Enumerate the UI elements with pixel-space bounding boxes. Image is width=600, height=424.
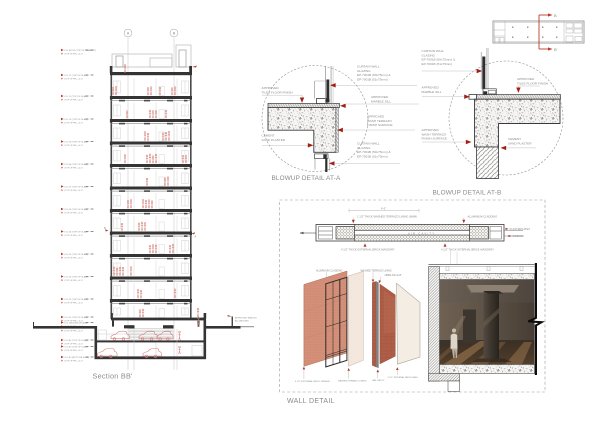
svg-text:SAND PLASTER: SAND PLASTER — [508, 141, 532, 145]
svg-text:25MM AIR GAP: 25MM AIR GAP — [385, 274, 402, 277]
svg-text:(TOP OF FFL) +0'-0": (TOP OF FFL) +0'-0" — [65, 167, 84, 169]
svg-text:FINISH SURFACE: FINISH SURFACE — [367, 123, 393, 127]
svg-text:LVL ROOF (TOP OF PARAPET): LVL ROOF (TOP OF PARAPET) — [65, 49, 97, 52]
svg-text:MARBLE SILL: MARBLE SILL — [422, 90, 442, 94]
svg-text:(TOP OF FFL) +0'-0": (TOP OF FFL) +0'-0" — [65, 122, 84, 124]
svg-text:(TOP OF FFL) +0'-0": (TOP OF FFL) +0'-0" — [65, 330, 84, 332]
svg-text:BLOWUP DETAIL AT-A: BLOWUP DETAIL AT-A — [272, 175, 341, 182]
svg-text:ALL AROUND: ALL AROUND — [235, 320, 249, 323]
svg-text:LVL 06 (TOP OF SLAB): LVL 06 (TOP OF SLAB) — [65, 208, 88, 211]
svg-text:LVL 04 (TOP OF SLAB): LVL 04 (TOP OF SLAB) — [65, 253, 88, 256]
svg-text:WALL DETAIL: WALL DETAIL — [287, 398, 335, 405]
svg-text:(TOP OF FFL) +0'-0": (TOP OF FFL) +0'-0" — [65, 360, 84, 362]
svg-text:AIR CAVITY: AIR CAVITY — [408, 231, 435, 235]
svg-text:LVL GROUND (PLAZA): LVL GROUND (PLAZA) — [65, 322, 88, 325]
svg-text:LVL 10 (TOP OF SLAB): LVL 10 (TOP OF SLAB) — [65, 118, 88, 121]
svg-text:(TOP OF FFL) +0'-0": (TOP OF FFL) +0'-0" — [65, 302, 84, 304]
svg-text:A: A — [127, 31, 130, 36]
svg-text:LVL 02 (TOP OF SLAB): LVL 02 (TOP OF SLAB) — [65, 298, 88, 301]
svg-text:WASHED TERRAZO LINING: WASHED TERRAZO LINING — [338, 380, 367, 383]
svg-text:WINDOW: WINDOW — [513, 234, 525, 238]
svg-text:(TOP OF FFL) +0'-0": (TOP OF FFL) +0'-0" — [65, 99, 84, 101]
svg-text:ALUMINIUM CLADDING: ALUMINIUM CLADDING — [316, 270, 343, 273]
svg-text:1 1/2" THICK WASHED TERRAZO LI: 1 1/2" THICK WASHED TERRAZO LINING (6MM) — [357, 215, 417, 219]
svg-text:PLASTER/LATEX: PLASTER/LATEX — [510, 227, 531, 231]
svg-text:LVL 01 (TOP OF SLAB): LVL 01 (TOP OF SLAB) — [65, 316, 88, 319]
svg-text:(TOP OF FFL) +0'-0": (TOP OF FFL) +0'-0" — [65, 190, 84, 192]
svg-text:4 1/2" THICK EXTERNAL BRICK MA: 4 1/2" THICK EXTERNAL BRICK MASONRY — [341, 247, 395, 251]
svg-text:4'-0": 4'-0" — [381, 206, 386, 210]
svg-text:(TOP OF FFL) +0'-0": (TOP OF FFL) +0'-0" — [65, 257, 84, 259]
svg-text:(TOP OF FFL) +0'-0": (TOP OF FFL) +0'-0" — [65, 53, 84, 55]
svg-text:LVL 07 (TOP OF SLAB): LVL 07 (TOP OF SLAB) — [65, 186, 88, 189]
svg-text:EP-7001B (51x75mm): EP-7001B (51x75mm) — [357, 154, 388, 158]
svg-text:LVL B1 (TOP OF SLAB): LVL B1 (TOP OF SLAB) — [65, 339, 89, 342]
svg-text:LVL B2 (TOP OF SLAB): LVL B2 (TOP OF SLAB) — [65, 346, 89, 349]
svg-text:LVL 09 (TOP OF SLAB): LVL 09 (TOP OF SLAB) — [65, 141, 88, 144]
svg-text:ALUMINIUM CLADDING: ALUMINIUM CLADDING — [468, 215, 498, 219]
svg-text:(TOP OF FFL) +0'-0": (TOP OF FFL) +0'-0" — [65, 212, 84, 214]
svg-text:B': B' — [554, 47, 558, 52]
svg-text:(TOP OF FFL) +0'-0": (TOP OF FFL) +0'-0" — [65, 78, 84, 80]
svg-text:TILES FLOOR FINISH: TILES FLOOR FINISH — [517, 81, 548, 85]
svg-text:SAND PLASTER: SAND PLASTER — [262, 138, 286, 142]
svg-text:TILES FLOOR FINISH: TILES FLOOR FINISH — [262, 90, 293, 94]
svg-text:4 1/2" EXTERNAL BRICK VENEER: 4 1/2" EXTERNAL BRICK VENEER — [295, 380, 330, 383]
svg-text:4 1/2" INTERNAL BRICK WALL: 4 1/2" INTERNAL BRICK WALL — [388, 376, 420, 379]
svg-text:B: B — [554, 13, 557, 18]
svg-text:AIR CAVITY: AIR CAVITY — [373, 379, 386, 382]
svg-text:LVL 12 (TOP OF SLAB): LVL 12 (TOP OF SLAB) — [65, 74, 88, 77]
svg-text:LVL 08 (TOP OF SLAB): LVL 08 (TOP OF SLAB) — [65, 163, 88, 166]
svg-text:(TOP OF FFL) +0'-0": (TOP OF FFL) +0'-0" — [65, 350, 84, 352]
svg-text:EP-7001B (51x75mm): EP-7001B (51x75mm) — [422, 62, 453, 66]
svg-text:LVL 03 (TOP OF SLAB): LVL 03 (TOP OF SLAB) — [65, 276, 88, 279]
svg-text:LVL 05 (TOP OF SLAB): LVL 05 (TOP OF SLAB) — [65, 231, 88, 234]
svg-text:B: B — [173, 31, 176, 36]
svg-text:(TOP OF FFL) +0'-0": (TOP OF FFL) +0'-0" — [65, 343, 84, 345]
svg-text:LVL B2 (BOTTOM SLAB): LVL B2 (BOTTOM SLAB) — [65, 356, 90, 359]
svg-text:LVL 11 (TOP OF SLAB): LVL 11 (TOP OF SLAB) — [65, 95, 88, 98]
svg-text:FINISH SURFACE: FINISH SURFACE — [422, 137, 448, 141]
svg-text:BLOWUP DETAIL AT-B: BLOWUP DETAIL AT-B — [433, 190, 502, 197]
svg-text:MARBLE SILL: MARBLE SILL — [371, 99, 391, 103]
svg-text:EP-7001B (51x75mm): EP-7001B (51x75mm) — [357, 77, 388, 81]
svg-text:APPROVED RAILING: APPROVED RAILING — [235, 317, 257, 320]
svg-text:4 1/2" THICK INTERNAL BRICK MA: 4 1/2" THICK INTERNAL BRICK MASONRY — [441, 247, 494, 251]
svg-text:(TOP OF FFL) +0'-0": (TOP OF FFL) +0'-0" — [65, 145, 84, 147]
svg-text:WASHED TERRAZO LINING: WASHED TERRAZO LINING — [361, 270, 392, 273]
svg-text:(TOP OF FFL) +0'-0": (TOP OF FFL) +0'-0" — [65, 280, 84, 282]
svg-text:B: B — [104, 226, 106, 230]
svg-text:(TOP OF FFL) +0'-0": (TOP OF FFL) +0'-0" — [65, 235, 84, 237]
svg-text:Section BB': Section BB' — [93, 372, 134, 381]
svg-text:A: A — [195, 235, 197, 239]
